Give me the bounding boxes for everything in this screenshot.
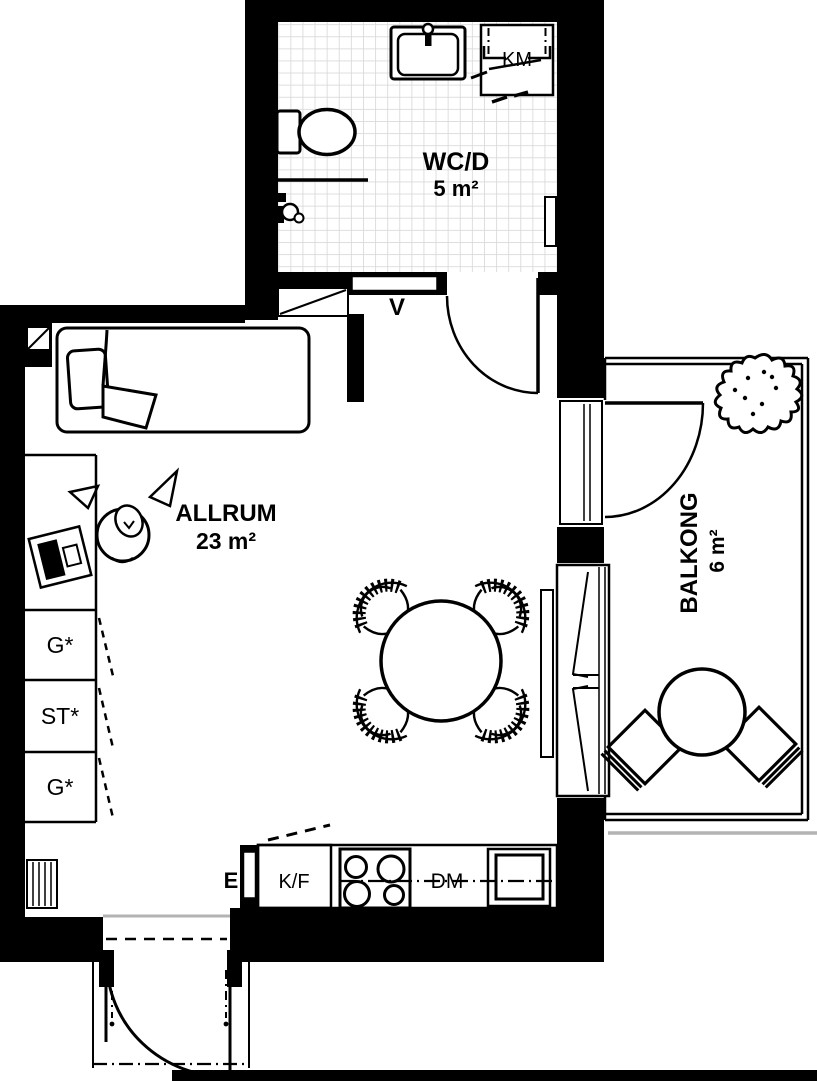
closet-door-swing-2 (99, 688, 113, 748)
balcony-table (659, 669, 745, 755)
wall-hall-stub (347, 314, 364, 402)
hallway: V (389, 278, 538, 393)
closet-label-bottom: G* (47, 774, 74, 800)
wall-bath-bottom-right (538, 272, 604, 295)
closet-label-middle: ST* (41, 703, 79, 729)
corner-shaft-symbol (27, 327, 50, 350)
dining-set (344, 570, 539, 753)
washing-machine-label: KM (502, 49, 532, 71)
living-room-label: ALLRUM (175, 500, 276, 527)
electrical-label: E (224, 868, 239, 893)
floor-plan-canvas: KM WC/D 5 m² V (0, 0, 817, 1081)
closet-door-swing-1 (99, 618, 113, 676)
vent-niche (352, 277, 437, 291)
washbasin (391, 24, 465, 79)
wall-right-mid (557, 527, 604, 563)
bottom-edge-wall-strip (172, 1070, 817, 1081)
cabinet-door-swing (268, 825, 330, 840)
shaft-symbol (278, 288, 348, 316)
bed (57, 328, 309, 432)
balcony-plant (715, 354, 802, 432)
living-window (541, 563, 612, 798)
ventilation-label: V (389, 294, 405, 321)
living-room: G* ST* G* ALLRUM 23 m² (25, 328, 538, 908)
wall-right-upper (557, 0, 604, 398)
balcony-area: 6 m² (706, 529, 729, 572)
kitchen: K/F DM E (224, 825, 557, 908)
bathroom: KM WC/D 5 m² (277, 22, 557, 272)
balcony-furniture (602, 669, 803, 790)
wall-bottom (230, 908, 604, 962)
closet-column: G* ST* G* (25, 455, 113, 822)
bathroom-area: 5 m² (433, 176, 478, 201)
wall-left (0, 305, 25, 962)
entrance (93, 916, 249, 1077)
balcony-label: BALKONG (676, 492, 703, 613)
desk (29, 526, 92, 587)
wall-bath-top (245, 0, 604, 22)
fridge-freezer-label: K/F (278, 871, 309, 893)
living-room-area: 23 m² (196, 528, 256, 554)
dining-table (381, 601, 501, 721)
electrical-niche (244, 852, 256, 898)
bathroom-door (447, 278, 538, 393)
closet-door-swing-3 (99, 758, 113, 818)
desk-chair-person (70, 471, 177, 562)
entrance-door-swing (107, 962, 228, 1077)
window-sill (541, 590, 553, 757)
balcony: BALKONG 6 m² (602, 354, 817, 833)
closet-label-top: G* (47, 632, 74, 658)
floor-plan-svg: KM WC/D 5 m² V (0, 0, 817, 1081)
bathroom-radiator (545, 197, 556, 246)
washing-machine-space: KM (471, 25, 553, 102)
living-radiator (27, 860, 57, 908)
toilet (277, 110, 355, 155)
door-post-right (227, 950, 242, 987)
bathroom-label: WC/D (423, 148, 490, 176)
